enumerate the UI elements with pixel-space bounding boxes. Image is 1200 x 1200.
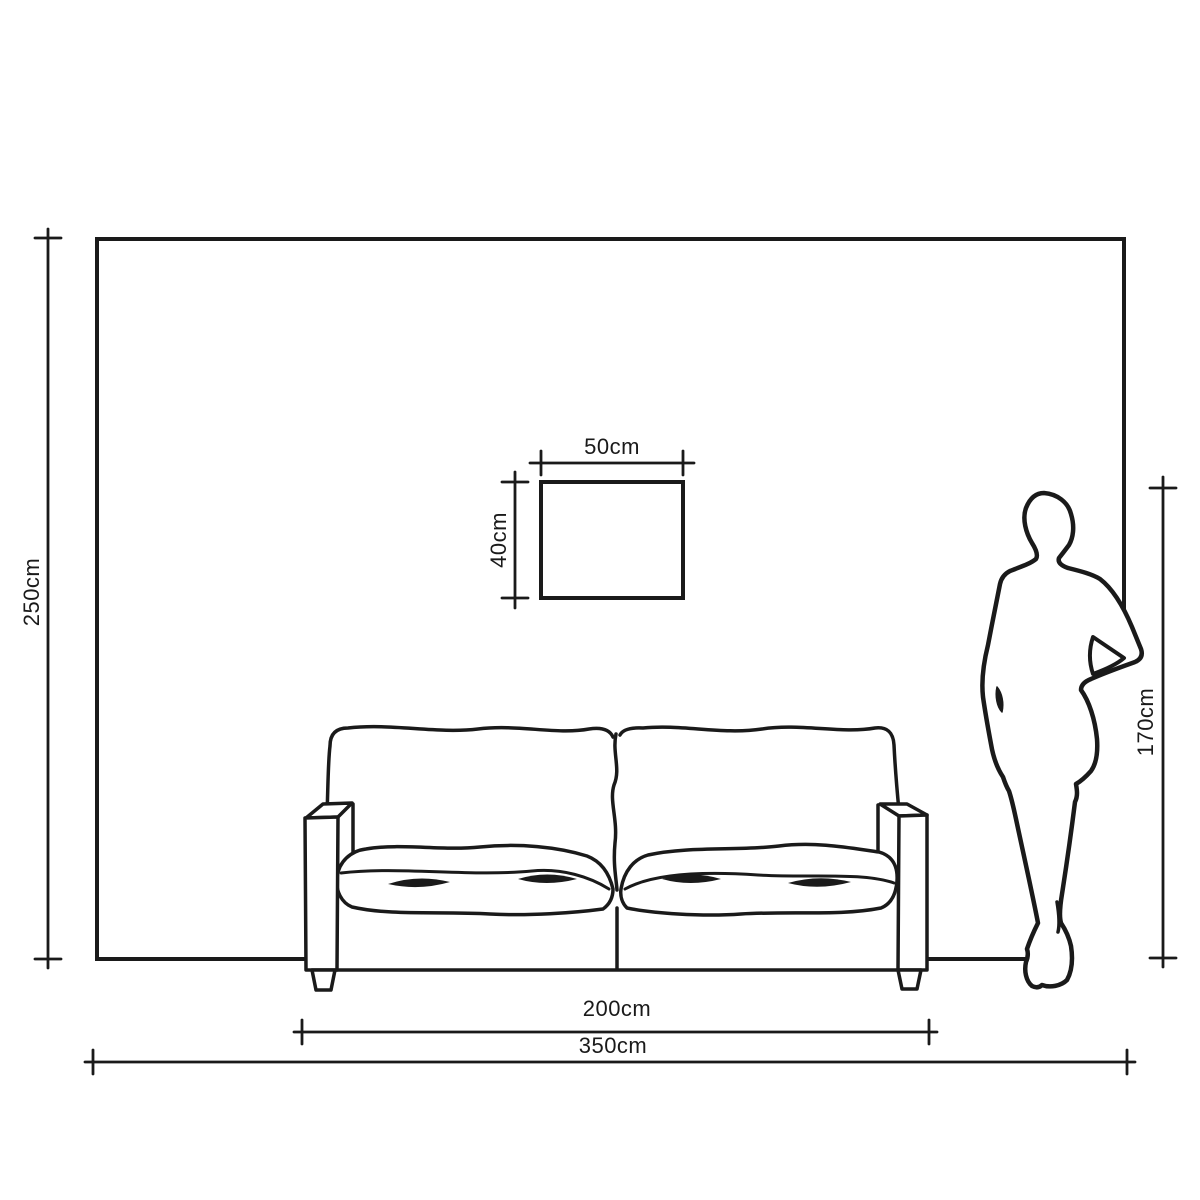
- wall-width-label: 350cm: [579, 1035, 648, 1057]
- person-outline: [982, 493, 1141, 987]
- person-figure: [982, 493, 1141, 987]
- elevation-diagram: 250cm 50cm 40cm 170cm 200cm 350cm: [0, 0, 1200, 1200]
- person-height-label: 170cm: [1135, 688, 1157, 757]
- wall-height-label: 250cm: [21, 558, 43, 627]
- sofa-feet: [312, 970, 921, 990]
- frame-height-label: 40cm: [488, 512, 510, 568]
- person-ankle-line: [1057, 902, 1059, 932]
- sofa-width-label: 200cm: [583, 998, 652, 1020]
- picture-frame: [541, 482, 683, 598]
- frame-width-label: 50cm: [584, 436, 640, 458]
- sofa: [305, 727, 927, 990]
